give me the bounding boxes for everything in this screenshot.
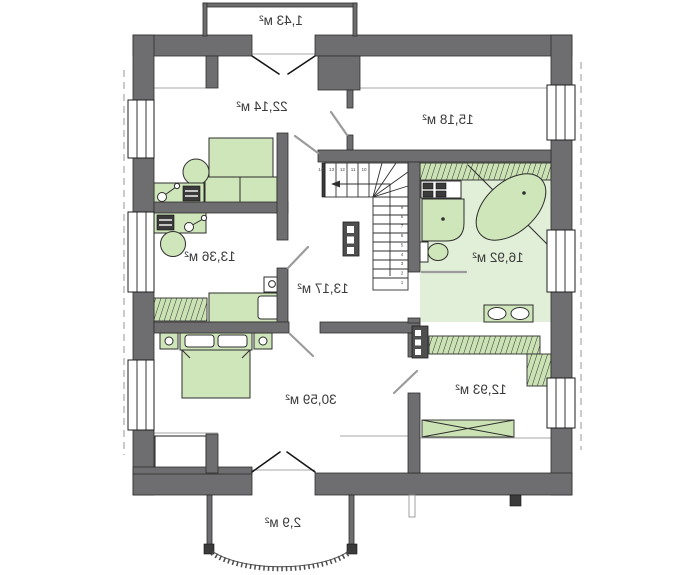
vent-shaft xyxy=(412,326,428,358)
window xyxy=(128,212,154,292)
single-bed xyxy=(209,277,286,322)
pouf-chair xyxy=(183,159,209,185)
washing-machine-unit xyxy=(421,181,461,198)
svg-text:3: 3 xyxy=(401,261,404,266)
window xyxy=(547,378,575,428)
svg-text:10: 10 xyxy=(361,167,367,172)
vent-shaft xyxy=(343,222,359,256)
wardrobe-l-shaped xyxy=(429,336,551,386)
chest-crossed xyxy=(422,420,514,437)
room-label-bedroom-master: 30,59 м² xyxy=(285,392,337,407)
wardrobe xyxy=(154,298,207,321)
desk-with-computer xyxy=(154,212,207,233)
wall-stubs-bottom xyxy=(409,495,521,517)
svg-text:12: 12 xyxy=(340,167,346,172)
balcony-bottom-structure xyxy=(204,495,357,569)
room-label-bathroom: 16,92 м² xyxy=(472,250,524,265)
double-bed xyxy=(180,333,252,398)
double-sink-vanity xyxy=(484,305,533,322)
door-room-left-middle xyxy=(288,247,308,268)
door-living-room xyxy=(295,136,318,153)
floor-plan-canvas: 1234567891011121314 xyxy=(0,0,700,575)
svg-text:6: 6 xyxy=(401,233,404,238)
stairs: 1234567891011121314 xyxy=(318,163,408,290)
nightstand xyxy=(160,333,178,349)
pouf-chair xyxy=(161,232,186,257)
nightstand xyxy=(254,333,272,349)
svg-text:14: 14 xyxy=(318,167,324,172)
room-label-bedroom-top-right: 15,18 м² xyxy=(422,112,474,127)
toilet xyxy=(420,242,448,262)
door-wardrobe-room xyxy=(394,371,417,393)
svg-text:7: 7 xyxy=(401,224,404,229)
corner-shower xyxy=(422,199,464,241)
room-label-balcony-top: 1,43 м² xyxy=(259,13,303,28)
svg-text:9: 9 xyxy=(401,205,404,210)
svg-text:5: 5 xyxy=(401,242,404,247)
window xyxy=(128,100,154,158)
balcony-doors xyxy=(252,56,315,472)
svg-text:1: 1 xyxy=(401,280,404,285)
door-bedroom-top-right xyxy=(331,112,347,135)
svg-text:8: 8 xyxy=(401,214,404,219)
svg-text:11: 11 xyxy=(351,167,356,172)
svg-text:4: 4 xyxy=(401,252,404,257)
window xyxy=(547,230,575,292)
window xyxy=(547,85,575,140)
sofa-bed xyxy=(205,138,277,203)
room-label-wardrobe-room: 12,93 м² xyxy=(455,382,507,397)
room-label-hall: 13,17 м² xyxy=(297,281,349,296)
room-label-living-room: 22,14 м² xyxy=(236,99,288,114)
svg-text:13: 13 xyxy=(329,167,335,172)
door-bedroom-master xyxy=(290,334,313,356)
room-label-room-left-middle: 13,36 м² xyxy=(184,249,236,264)
svg-text:2: 2 xyxy=(401,271,404,276)
window xyxy=(128,360,154,430)
room-label-balcony-bottom: 2,9 м² xyxy=(264,515,301,530)
floor-plan-drawing: 1234567891011121314 xyxy=(0,0,700,575)
desk-with-computer xyxy=(154,183,204,204)
